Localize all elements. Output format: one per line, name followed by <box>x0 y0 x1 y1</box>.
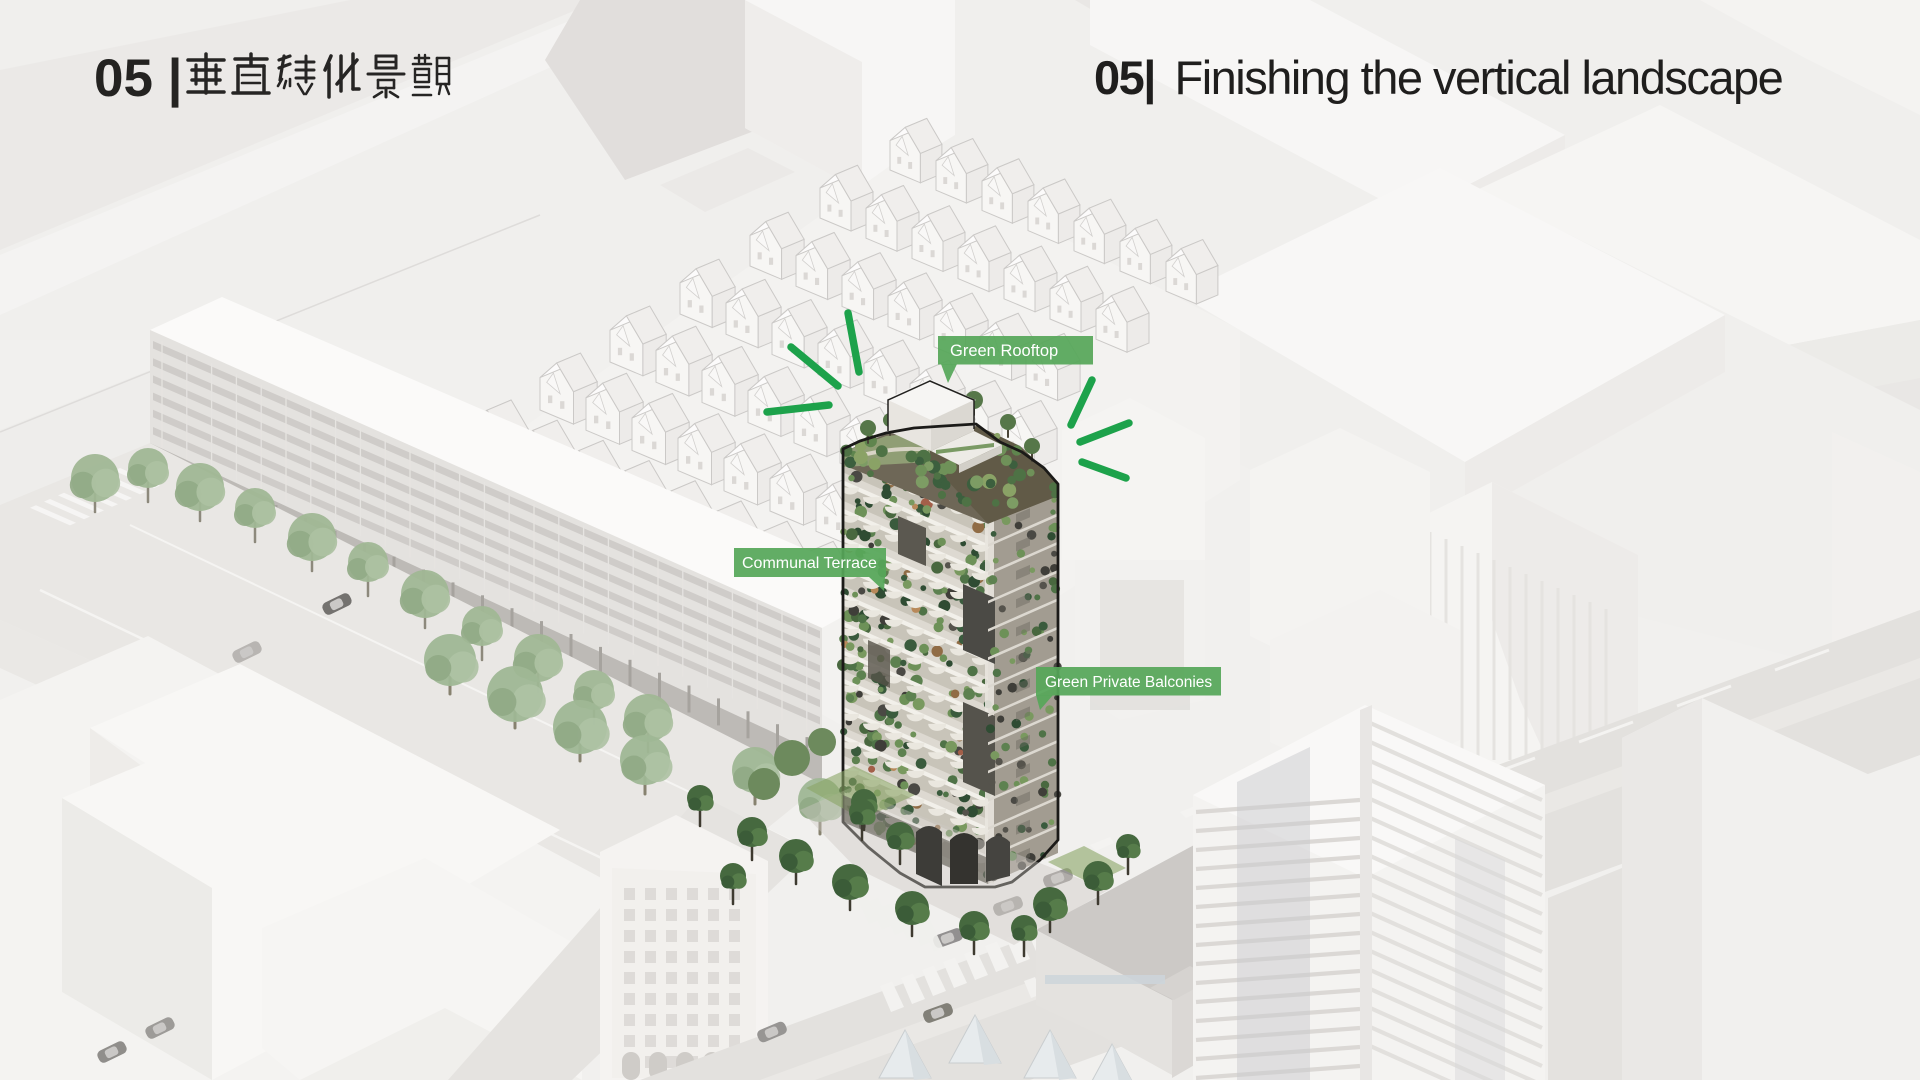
svg-text:Green Private Balconies: Green Private Balconies <box>1045 674 1212 691</box>
svg-text:05 |: 05 | <box>94 49 183 109</box>
svg-text:Green Rooftop: Green Rooftop <box>950 342 1058 360</box>
svg-text:05| Finishing the vertical lan: 05| Finishing the vertical landscape <box>1094 51 1783 104</box>
svg-text:Communal Terrace: Communal Terrace <box>742 555 877 572</box>
